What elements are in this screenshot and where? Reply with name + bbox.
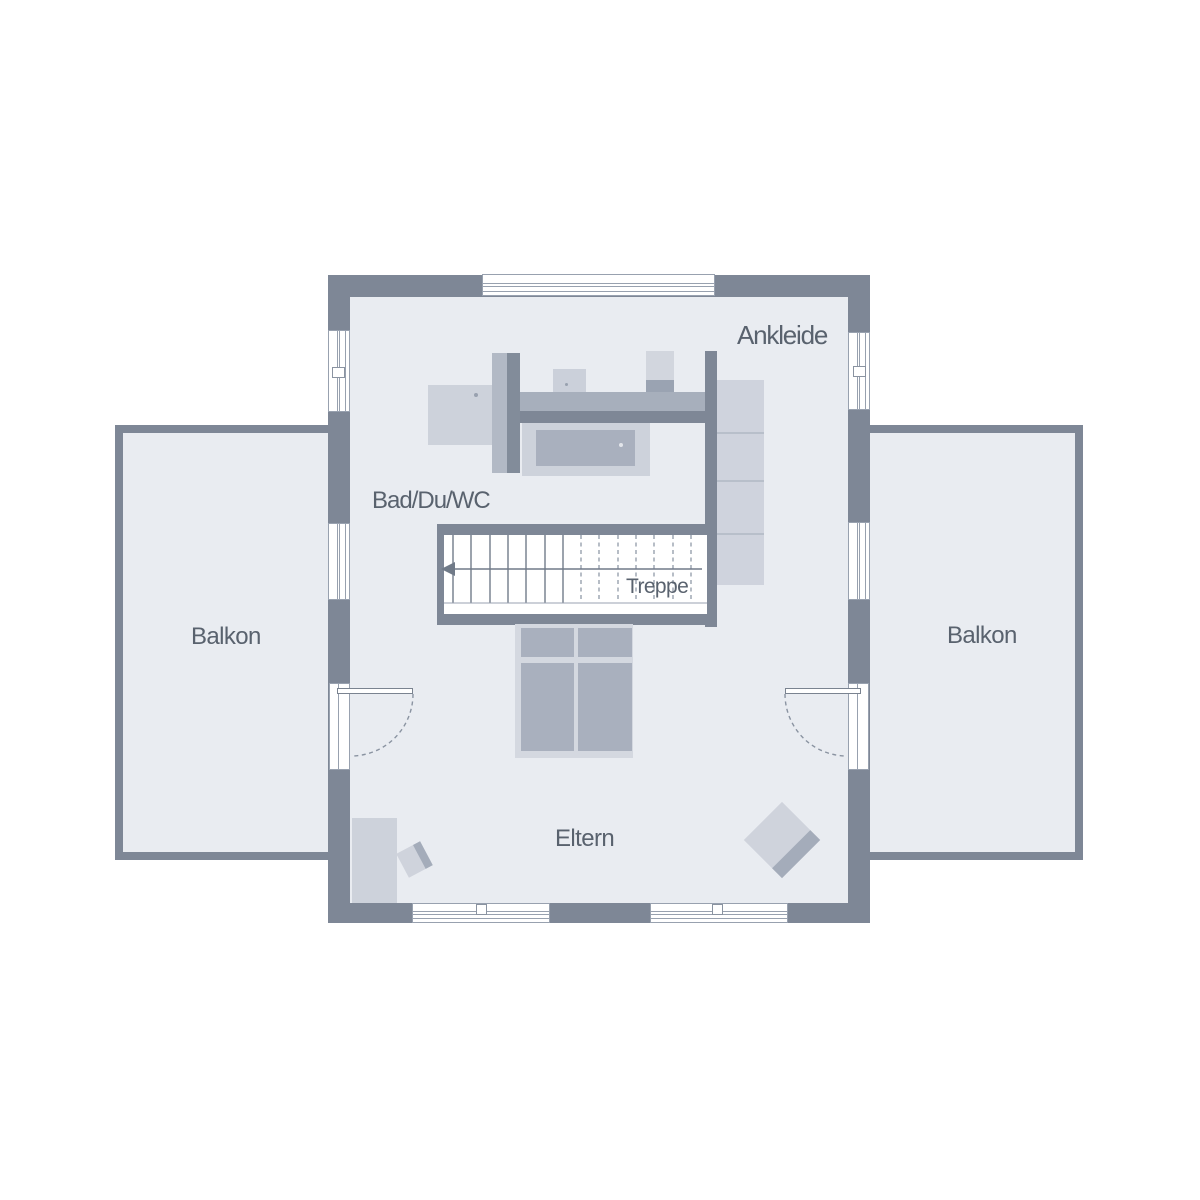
wardrobe-column (717, 380, 764, 585)
door-east-opening (848, 683, 869, 770)
floor-plan-canvas: Balkon Balkon (0, 0, 1200, 1200)
room-label-eltern: Eltern (555, 827, 614, 851)
door-west-opening (329, 683, 350, 770)
door-west-leaf (337, 688, 413, 694)
partition-wall-dark (507, 353, 520, 473)
bathtub-basin (536, 430, 635, 466)
room-label-treppe: Treppe (626, 576, 688, 597)
bed-duvet-left (521, 663, 574, 751)
window-handle-west-upper (332, 367, 345, 378)
partition-wall-light (492, 353, 507, 473)
stair-rail-top (437, 524, 717, 535)
room-label-bad: Bad/Du/WC (372, 489, 490, 513)
shower-drain (474, 393, 478, 397)
window-handle-south-right (712, 904, 723, 915)
washbasin (553, 369, 586, 392)
window-north (482, 274, 715, 296)
window-handle-south-left (476, 904, 487, 915)
shower (428, 385, 493, 445)
vanity-counter (520, 392, 705, 411)
balcony-left: Balkon (115, 425, 330, 860)
wardrobe-divider (717, 480, 764, 482)
bed-pillow-left (521, 628, 574, 657)
stair-rail-left (437, 524, 444, 625)
window-west-lower (328, 523, 350, 600)
dresser (352, 818, 397, 903)
balcony-right: Balkon (870, 425, 1083, 860)
bed-pillow-right (578, 628, 632, 657)
bath-half-wall (520, 411, 717, 423)
room-label-balkon-right: Balkon (947, 624, 1017, 648)
washbasin-drain (565, 383, 568, 386)
window-handle-east-upper (853, 366, 866, 377)
bed-duvet-right (578, 663, 632, 751)
wardrobe-divider (717, 533, 764, 535)
bathtub-drain (619, 443, 623, 447)
room-label-ankleide: Ankleide (737, 322, 827, 348)
door-east-leaf (785, 688, 861, 694)
room-label-balkon-left: Balkon (191, 625, 261, 649)
toilet-bowl (646, 351, 674, 380)
window-east-lower (848, 522, 870, 600)
wardrobe-divider (717, 432, 764, 434)
